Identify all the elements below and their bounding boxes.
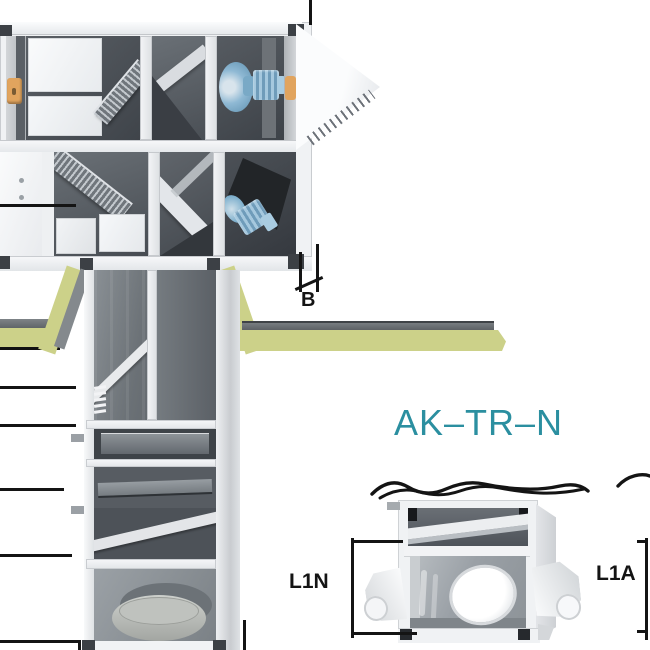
model-title: AK–TR–N — [394, 402, 563, 444]
tower-band — [86, 420, 216, 429]
latch-keyhole — [12, 88, 16, 95]
dimension-l1a-line — [645, 538, 648, 640]
tower-base-band — [84, 641, 226, 650]
filter-box-upper-2 — [28, 96, 102, 136]
tower-side-tab — [71, 506, 84, 514]
tower-side-tab — [71, 434, 84, 442]
door-screw — [19, 178, 24, 183]
detail-top-compartment — [408, 508, 528, 546]
unit-foot — [0, 256, 10, 269]
fan-motor-icon — [253, 70, 279, 100]
detail-base-block — [518, 629, 530, 640]
upper-left-compartment — [6, 36, 140, 140]
corner-cube-top-left — [0, 25, 12, 36]
supply-fan-compartment — [217, 36, 296, 140]
break-line-wavy — [360, 462, 650, 502]
tower-top-cube — [207, 258, 220, 270]
door-screw — [19, 195, 24, 200]
panel-diagonal-light — [170, 152, 213, 197]
filter-box-lower-1 — [56, 218, 96, 254]
dimension-l1a-tick-bottom — [637, 630, 646, 633]
heat-exchanger-plate-lower — [54, 152, 132, 221]
door-latch-icon — [285, 76, 296, 100]
frame-mullion — [148, 152, 160, 256]
dimension-l1n-line — [351, 538, 354, 638]
dimension-l1n-tick-bottom — [351, 632, 417, 635]
leader-line-coil — [0, 488, 64, 491]
coil-slab — [98, 479, 212, 498]
tower-band — [86, 459, 216, 467]
ahu-technical-diagram: B AK–TR–N L1N L1A — [0, 0, 650, 650]
leader-line-band — [0, 424, 76, 427]
spigot-top-face — [119, 597, 199, 625]
dimension-b-label: B — [301, 289, 315, 312]
tower-foot — [82, 640, 95, 650]
filter-cassette — [101, 433, 209, 454]
dimension-l1n-tick-top — [351, 540, 403, 543]
dimension-l1a-label: L1A — [596, 562, 636, 586]
tower-filter-slot — [94, 429, 216, 459]
filter-box-lower-2 — [99, 214, 145, 252]
leader-line-base-tick — [78, 640, 81, 650]
corner-block — [408, 508, 417, 521]
dimension-l1a-tick-top — [637, 540, 646, 543]
tower-damper-section — [94, 270, 216, 420]
leader-line-louver — [0, 386, 76, 389]
unit-base-band — [0, 256, 312, 271]
slanted-filter-panel — [94, 511, 216, 552]
leader-line-filter — [0, 554, 72, 557]
roof-slab-right-insulation — [240, 330, 506, 351]
dimension-l1n-label: L1N — [289, 570, 329, 594]
wall-slot — [431, 574, 438, 620]
dimension-b-line-2 — [316, 244, 319, 292]
ahu-top-face — [0, 22, 302, 35]
leader-line-base — [0, 640, 80, 643]
frame-mullion — [205, 36, 217, 140]
tower-mullion — [147, 270, 157, 420]
dimension-line-bottom-right — [243, 620, 246, 650]
tower-right-wall — [216, 270, 240, 650]
tower-slanted-filter-section — [94, 508, 216, 559]
tower-spigot-section — [94, 569, 216, 642]
extract-fan-compartment — [225, 152, 296, 256]
frame-mullion — [140, 36, 152, 140]
intake-hood — [296, 24, 380, 150]
lower-middle-compartment — [160, 152, 213, 256]
filter-box-upper-1 — [28, 38, 102, 92]
detail-bottom-compartment — [410, 556, 526, 630]
frame-mullion — [213, 152, 225, 256]
leader-line-heat-exchanger — [0, 204, 76, 207]
tower-foot — [213, 640, 226, 650]
wall-slot — [419, 570, 427, 616]
upper-middle-compartment — [152, 36, 205, 140]
tower-coil-section — [94, 467, 216, 508]
tower-right-duct — [157, 270, 216, 420]
leader-line-top — [309, 0, 312, 25]
detail-duct-stub — [387, 502, 400, 510]
tower-band — [86, 559, 216, 569]
